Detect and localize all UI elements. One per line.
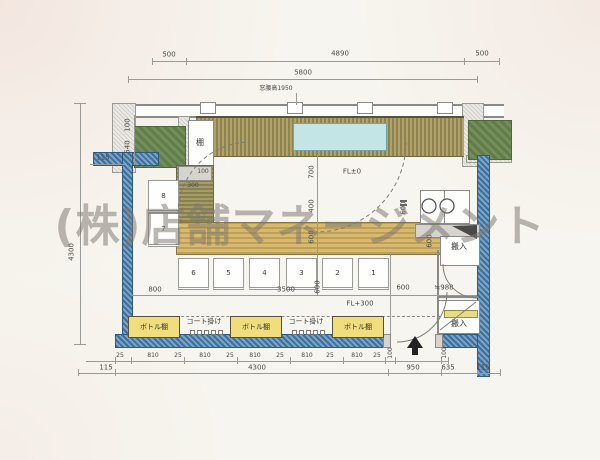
dim-label: 300 [187,183,198,189]
dim-tick [115,369,116,376]
dim-tick [343,357,344,364]
coat-hook [292,330,297,335]
dim-tick [74,103,86,104]
coat-hook [190,330,195,335]
dim-label: 600 [396,285,409,292]
dim-label: 25 [326,353,334,359]
dim-line [131,295,477,296]
dim-label: 600 [309,230,316,243]
dim-tick [477,76,478,83]
dim-line [152,61,500,62]
door-jamb [435,334,443,348]
dim-label: 100 [388,347,394,358]
coat-hook [306,330,311,335]
dim-label: 500 [475,51,488,58]
bottle-shelf: ボトル棚 [230,316,282,338]
dim-tick [128,76,129,83]
floor-level-label: FL+300 [346,301,373,308]
coat-hook [313,330,318,335]
coat-hook [299,330,304,335]
dim-label: 600 [427,234,434,247]
dim-label: 100 [125,118,132,131]
seat-number: 1 [371,269,375,277]
dim-label: 700 [309,165,316,178]
coat-hook [211,330,216,335]
dim-label: 25 [373,353,381,359]
dim-label: 810 [351,353,362,359]
dim-label: 810 [147,353,158,359]
floor-level-label: FL±0 [343,169,361,176]
coat-hook [218,330,223,335]
dim-label: 600 [401,201,408,214]
window-mullion [287,102,303,114]
dim-label: 25 [226,353,234,359]
dim-label: 25 [116,353,124,359]
seat-number: 5 [226,269,230,277]
dim-label: 4300 [248,365,266,372]
dim-label: 950 [406,365,419,372]
bottle-shelf-label: ボトル棚 [344,322,372,332]
partition-wall [437,250,439,334]
dim-line [78,373,500,374]
dim-label: 5800 [294,70,312,77]
bottle-shelf: コート掛けボトル棚 [332,316,384,338]
dim-tick [152,58,153,65]
shelf-label: 棚 [196,139,204,147]
storage-closet-top [440,236,480,266]
dim-tick [74,344,86,345]
dim-label: 25 [174,353,182,359]
bottle-shelf-label: ボトル棚 [242,322,270,332]
dim-tick [131,357,132,364]
seat-number: 6 [191,269,195,277]
seat-number: 3 [299,269,303,277]
coat-hook [197,330,202,335]
dim-line [90,164,124,165]
seat-number: 7 [161,225,165,233]
dim-label: 100 [197,169,208,175]
dim-tick [385,357,386,364]
carry-in-label: 搬入 [451,243,467,251]
seat-number: 2 [335,269,339,277]
dim-tick [184,357,185,364]
window-note: 窓腰高1950 [259,86,292,92]
carry-in-label: 搬入 [451,320,467,328]
window-mullion [357,102,373,114]
dim-tick [290,357,291,364]
dim-label: 115 [476,365,489,372]
closet-shelf [444,310,478,318]
counter-seat: 2 [322,258,353,290]
dim-line [134,115,135,165]
dim-label: 100 [442,347,448,358]
counter-seat: 6 [178,258,209,290]
dim-label: 540 [125,140,132,153]
counter-seat: 5 [213,258,244,290]
wall-bottom-right [441,334,480,348]
dim-label: 635 [441,365,454,372]
coat-hook-label: コート掛け [187,319,222,326]
dim-tick [388,369,389,376]
bottle-shelf: ボトル棚 [128,316,180,338]
dim-label: 500 [162,52,175,59]
dim-tick [499,58,500,65]
dim-label: 4890 [331,51,349,58]
kitchen-equipment [420,190,446,224]
entrance-arrow [407,336,423,355]
dim-label: 115 [99,365,112,372]
leader-line [296,93,297,105]
dim-label: 810 [301,353,312,359]
dim-tick [395,357,396,364]
dim-label: 600 [315,280,322,293]
dim-label: 800 [148,287,161,294]
planter-right [468,120,512,160]
bottle-shelf-label: ボトル棚 [140,322,168,332]
window-mullion [200,102,216,114]
door-jamb [383,334,391,348]
seat-number: 4 [262,269,266,277]
dim-label: 115 [96,155,109,162]
dim-line [80,103,81,345]
door-swing [443,264,477,298]
coat-hook-label: コート掛け [289,319,324,326]
dim-label: 3500 [277,287,295,294]
dim-extension [317,155,318,295]
bench-table-inset [293,123,387,151]
dim-line [86,361,448,362]
window-mullion [437,102,453,114]
floorplan-drawing: 棚 8 7 6 5 4 3 2 1 搬入 搬入 ボトル棚 ボトル棚 コート掛けボ… [0,0,600,460]
table-seat: 7 [148,213,179,247]
dim-tick [500,369,501,376]
dim-label: 400 [309,199,316,212]
dim-label: 810 [199,353,210,359]
partition-line [390,253,391,334]
kitchen-equipment [444,190,470,224]
dim-label: 25 [276,353,284,359]
partition-wall [437,296,478,298]
table-seat: 8 [148,180,179,213]
dim-tick [78,369,79,376]
dim-label: 810 [249,353,260,359]
dim-label: ≒988 [434,285,453,292]
dim-line [128,79,478,80]
wall-right [477,155,490,377]
seat-number: 8 [161,192,165,200]
dim-label: 4300 [69,243,76,261]
dim-tick [464,58,465,65]
counter-seat: 1 [358,258,389,290]
coat-hook [320,330,325,335]
dim-tick [237,357,238,364]
counter-seat: 4 [249,258,280,290]
coat-hook [204,330,209,335]
dim-tick [186,58,187,65]
